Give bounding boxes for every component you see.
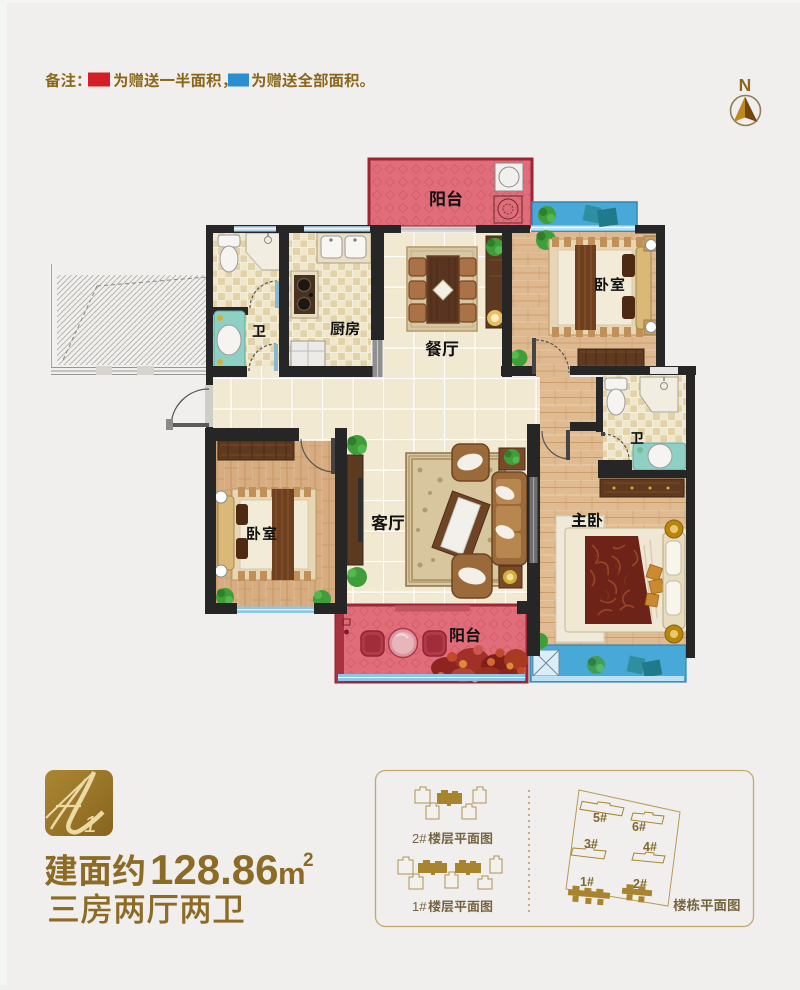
svg-text:3#: 3# bbox=[584, 837, 598, 851]
svg-text:1: 1 bbox=[84, 811, 97, 837]
svg-text:1#: 1# bbox=[580, 875, 594, 889]
svg-text:1#: 1# bbox=[412, 899, 427, 914]
svg-text:4#: 4# bbox=[643, 840, 657, 854]
svg-text:2: 2 bbox=[303, 850, 314, 871]
svg-text:2#: 2# bbox=[412, 831, 427, 846]
svg-text:5#: 5# bbox=[593, 811, 607, 825]
svg-text:m: m bbox=[278, 856, 306, 891]
svg-text:6#: 6# bbox=[632, 820, 646, 834]
svg-text:128.86: 128.86 bbox=[150, 846, 278, 893]
svg-text:N: N bbox=[739, 75, 752, 95]
